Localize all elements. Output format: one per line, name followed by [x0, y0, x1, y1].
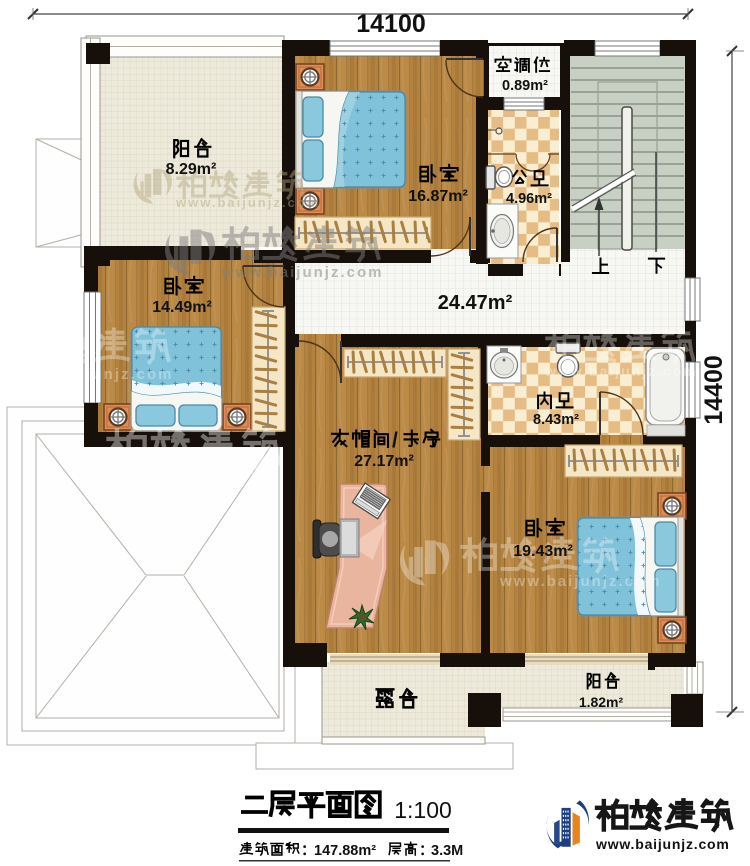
svg-text:27.17m²: 27.17m² — [354, 453, 414, 470]
svg-text:/: / — [392, 429, 398, 452]
svg-text:24.47m²: 24.47m² — [438, 292, 513, 314]
svg-text:www.baijunjz.com: www.baijunjz.com — [221, 264, 383, 281]
svg-text:3.3M: 3.3M — [431, 843, 463, 859]
svg-text:www.baijunjz.com: www.baijunjz.com — [544, 363, 698, 379]
svg-text:19.43m²: 19.43m² — [513, 543, 573, 560]
svg-text:0.89m²: 0.89m² — [502, 78, 548, 94]
svg-text:4.96m²: 4.96m² — [506, 191, 552, 207]
svg-text:www.baijunjz.com: www.baijunjz.com — [499, 573, 661, 590]
svg-text:1.82m²: 1.82m² — [579, 694, 624, 710]
svg-text:www.baijunjz.com: www.baijunjz.com — [175, 195, 320, 210]
svg-text:147.88m²: 147.88m² — [314, 843, 376, 859]
svg-text:www.baijunjz.com: www.baijunjz.com — [11, 366, 173, 383]
svg-text:14.49m²: 14.49m² — [152, 299, 212, 316]
svg-text:14100: 14100 — [356, 10, 426, 38]
svg-text:www.baijunjz.com: www.baijunjz.com — [595, 836, 730, 852]
svg-text:8.43m²: 8.43m² — [533, 412, 579, 428]
svg-text:14400: 14400 — [700, 355, 728, 425]
svg-text:www.baijunjz.com: www.baijunjz.com — [105, 461, 276, 478]
svg-text:16.87m²: 16.87m² — [408, 188, 468, 205]
svg-text:1:100: 1:100 — [394, 797, 452, 823]
svg-text:8.29m²: 8.29m² — [166, 161, 217, 178]
